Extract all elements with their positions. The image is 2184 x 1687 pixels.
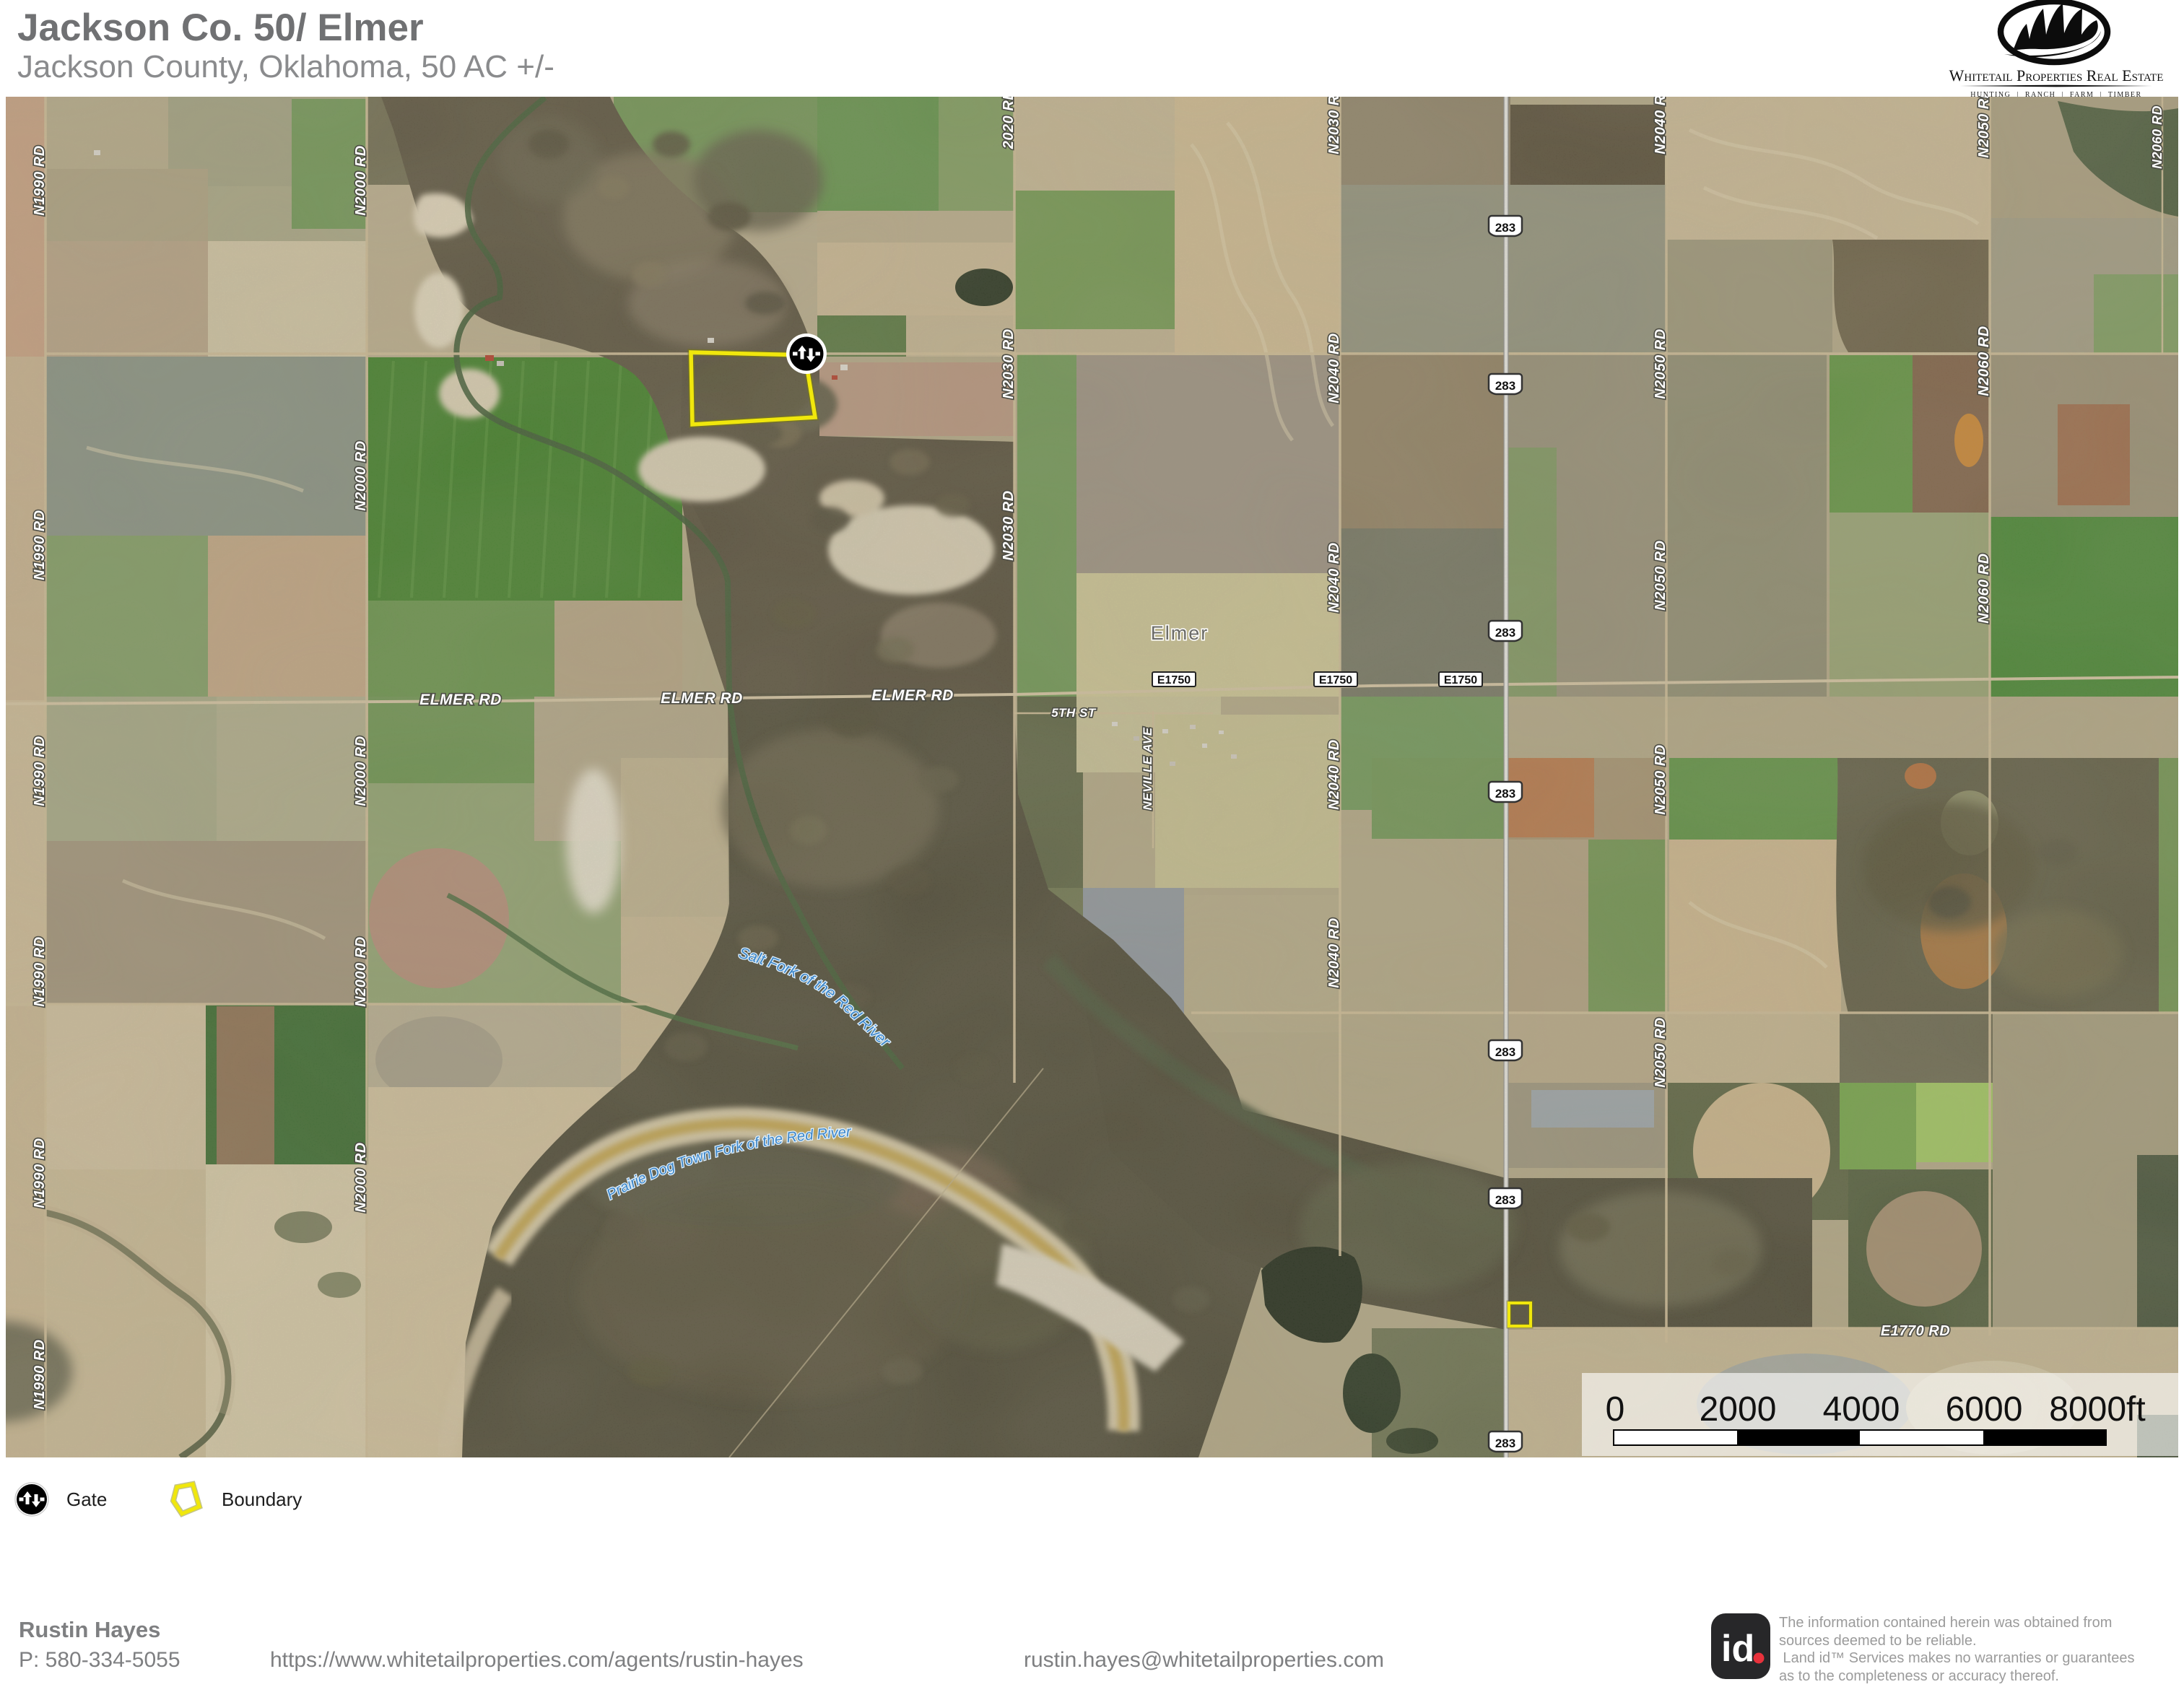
svg-text:283: 283 [1495,1193,1515,1207]
svg-text:N2050 RD: N2050 RD [1653,1017,1669,1087]
svg-text:N1990 RD: N1990 RD [32,145,48,215]
svg-text:E1770 RD: E1770 RD [1881,1323,1950,1339]
svg-text:NEVILLE AVE: NEVILLE AVE [1141,727,1154,810]
svg-text:N2040 RD: N2040 RD [1326,739,1342,809]
svg-text:0: 0 [1606,1390,1625,1429]
svg-text:N2040 RD: N2040 RD [1326,542,1342,612]
svg-text:N2030 RD: N2030 RD [1001,328,1017,398]
svg-text:6000: 6000 [1946,1390,2023,1429]
svg-text:N2050 RD: N2050 RD [1976,97,1992,158]
svg-text:N2030 RD: N2030 RD [1001,490,1017,560]
svg-text:N2050 RD: N2050 RD [1653,328,1669,398]
svg-text:Gate: Gate [66,1488,107,1510]
svg-text:N2060 RD: N2060 RD [1976,326,1992,396]
svg-text:N2060 RD: N2060 RD [1976,553,1992,623]
svg-text:N1990 RD: N1990 RD [32,1138,48,1208]
svg-text:N1990 RD: N1990 RD [32,1339,48,1409]
svg-text:2000: 2000 [1700,1390,1777,1429]
svg-text:N2000 RD: N2000 RD [353,736,369,806]
svg-text:N2000 RD: N2000 RD [353,440,369,510]
svg-text:N1990 RD: N1990 RD [32,510,48,580]
svg-text:N1990 RD: N1990 RD [32,736,48,806]
svg-text:Boundary: Boundary [222,1488,302,1510]
svg-text:Whitetail Properties Real Esta: Whitetail Properties Real Estate [1949,66,2164,84]
svg-text:N2040 RD: N2040 RD [1653,97,1669,154]
svg-text:283: 283 [1495,1437,1515,1450]
svg-text:283: 283 [1495,379,1515,393]
svg-text:N2000 RD: N2000 RD [353,936,369,1006]
svg-text:Elmer: Elmer [1151,622,1209,644]
svg-text:283: 283 [1495,221,1515,235]
svg-text:E1750: E1750 [1444,674,1477,686]
svg-text:N1990 RD: N1990 RD [32,936,48,1006]
svg-text:N2000 RD: N2000 RD [353,1142,369,1212]
svg-text:ELMER RD: ELMER RD [419,692,502,708]
svg-text:N2000 RD: N2000 RD [353,145,369,215]
svg-text:ELMER RD: ELMER RD [871,687,954,704]
svg-text:283: 283 [1495,1045,1515,1059]
svg-text:8000ft: 8000ft [2049,1390,2145,1429]
svg-text:N2050 RD: N2050 RD [1653,540,1669,610]
svg-text:N2040 RD: N2040 RD [1326,333,1342,403]
svg-text:N2050 RD: N2050 RD [1653,744,1669,814]
svg-text:N2030 RD: N2030 RD [1326,97,1342,154]
svg-text:E1750: E1750 [1157,674,1191,686]
svg-text:4000: 4000 [1823,1390,1900,1429]
svg-text:2020 RD: 2020 RD [1001,97,1017,149]
svg-text:N2040 RD: N2040 RD [1326,917,1342,988]
svg-text:id: id [1721,1628,1754,1670]
svg-text:ELMER RD: ELMER RD [661,690,743,707]
svg-text:283: 283 [1495,626,1515,640]
svg-text:N2060 RD: N2060 RD [2150,105,2165,169]
svg-text:5TH ST: 5TH ST [1051,706,1097,720]
svg-text:E1750: E1750 [1319,674,1352,686]
svg-text:283: 283 [1495,787,1515,801]
